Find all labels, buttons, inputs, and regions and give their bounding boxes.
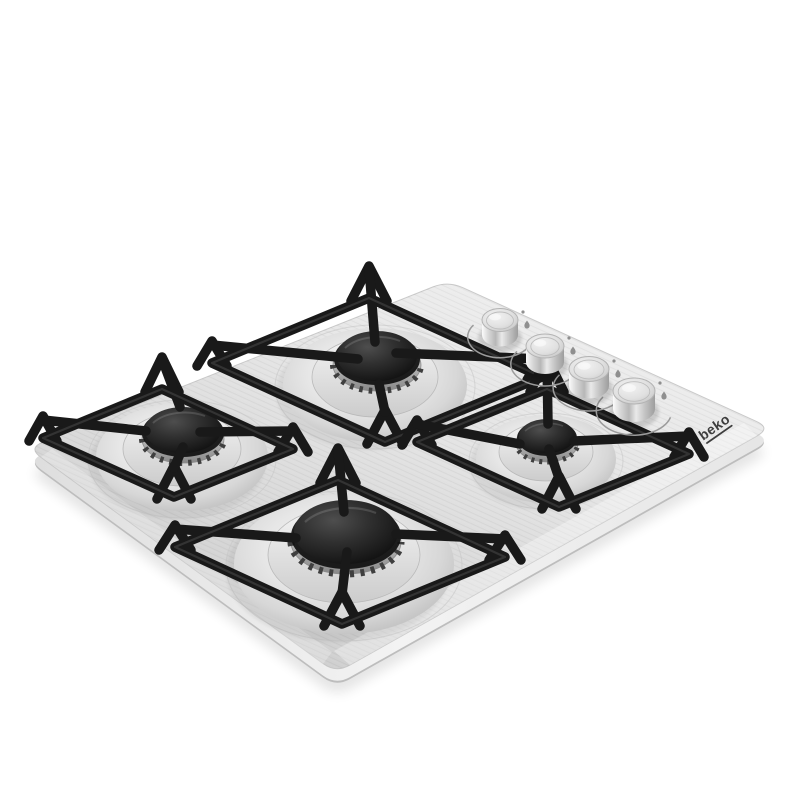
control-knob-3 (565, 357, 613, 405)
control-knob-1 (478, 309, 522, 353)
control-knob-4 (609, 378, 659, 428)
flame-low-dot-icon (612, 359, 615, 362)
flame-low-dot-icon (521, 310, 524, 313)
control-knob-2 (522, 334, 568, 380)
product-image: beko (0, 0, 800, 800)
gas-hob-photo: beko (0, 0, 800, 800)
flame-low-dot-icon (567, 336, 570, 339)
flame-low-dot-icon (658, 381, 661, 384)
